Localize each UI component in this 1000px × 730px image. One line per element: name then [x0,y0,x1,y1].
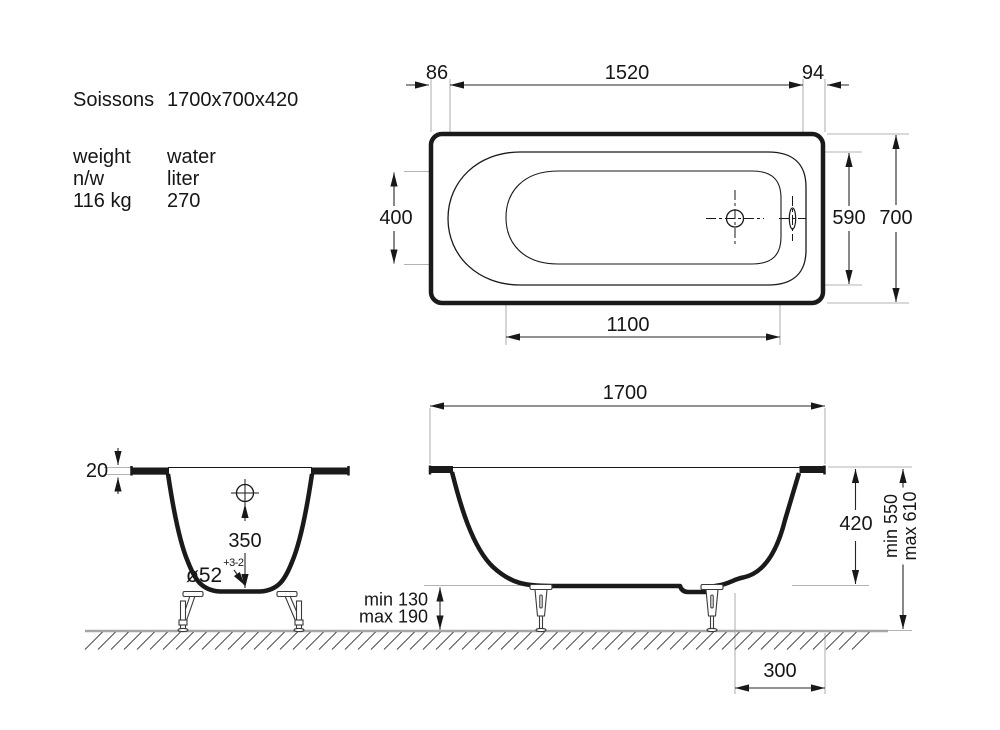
drain-tolerance-value: +3-2 [223,557,243,569]
dim-install-height: min 550 max 610 [881,487,921,564]
dim-floor-width: 400 [376,208,415,228]
drain-diameter-value: ø52 [186,564,222,587]
side-view-drawing [429,466,826,632]
tub-outer-edge [431,134,823,303]
dim-height-min: min 550 [882,491,901,560]
dim-edge-right: 94 [802,63,824,83]
dim-rim-thickness: 20 [86,461,108,481]
ground-hatching [85,632,870,650]
top-view-drawing [431,134,823,303]
dim-edge-left: 86 [426,63,448,83]
dim-tub-depth: 420 [836,514,875,534]
ground [85,631,888,650]
weight-value: 116 kg [73,191,132,211]
water-unit-label: liter [167,169,199,189]
weight-label: weight [73,147,131,167]
dim-rim-width: 590 [829,208,868,228]
dim-overall-width: 700 [876,208,915,228]
side-view-dimension-lines [430,406,903,688]
dim-rim-length: 1520 [605,63,650,83]
bathtub-technical-drawing: Soissons 1700x700x420 weight n/w 116 kg … [0,0,1000,730]
water-label: water [167,147,216,167]
weight-unit-label: n/w [73,169,104,189]
dim-leg-clearance-max: max 190 [359,606,428,627]
product-name: Soissons [73,90,154,110]
dim-drain-diameter: ø52+3-2 [186,564,244,588]
product-dimensions: 1700x700x420 [167,90,298,110]
dim-overall-length: 1700 [603,383,648,403]
water-value: 270 [167,191,200,211]
dim-floor-length: 1100 [606,315,649,335]
dim-overflow-to-bottom: 350 [225,531,264,551]
dim-drain-to-end: 300 [763,661,796,681]
tub-profile [452,472,799,592]
dim-height-max: max 610 [901,491,920,560]
front-legs [178,592,304,632]
overflow-hole-icon [231,479,259,507]
